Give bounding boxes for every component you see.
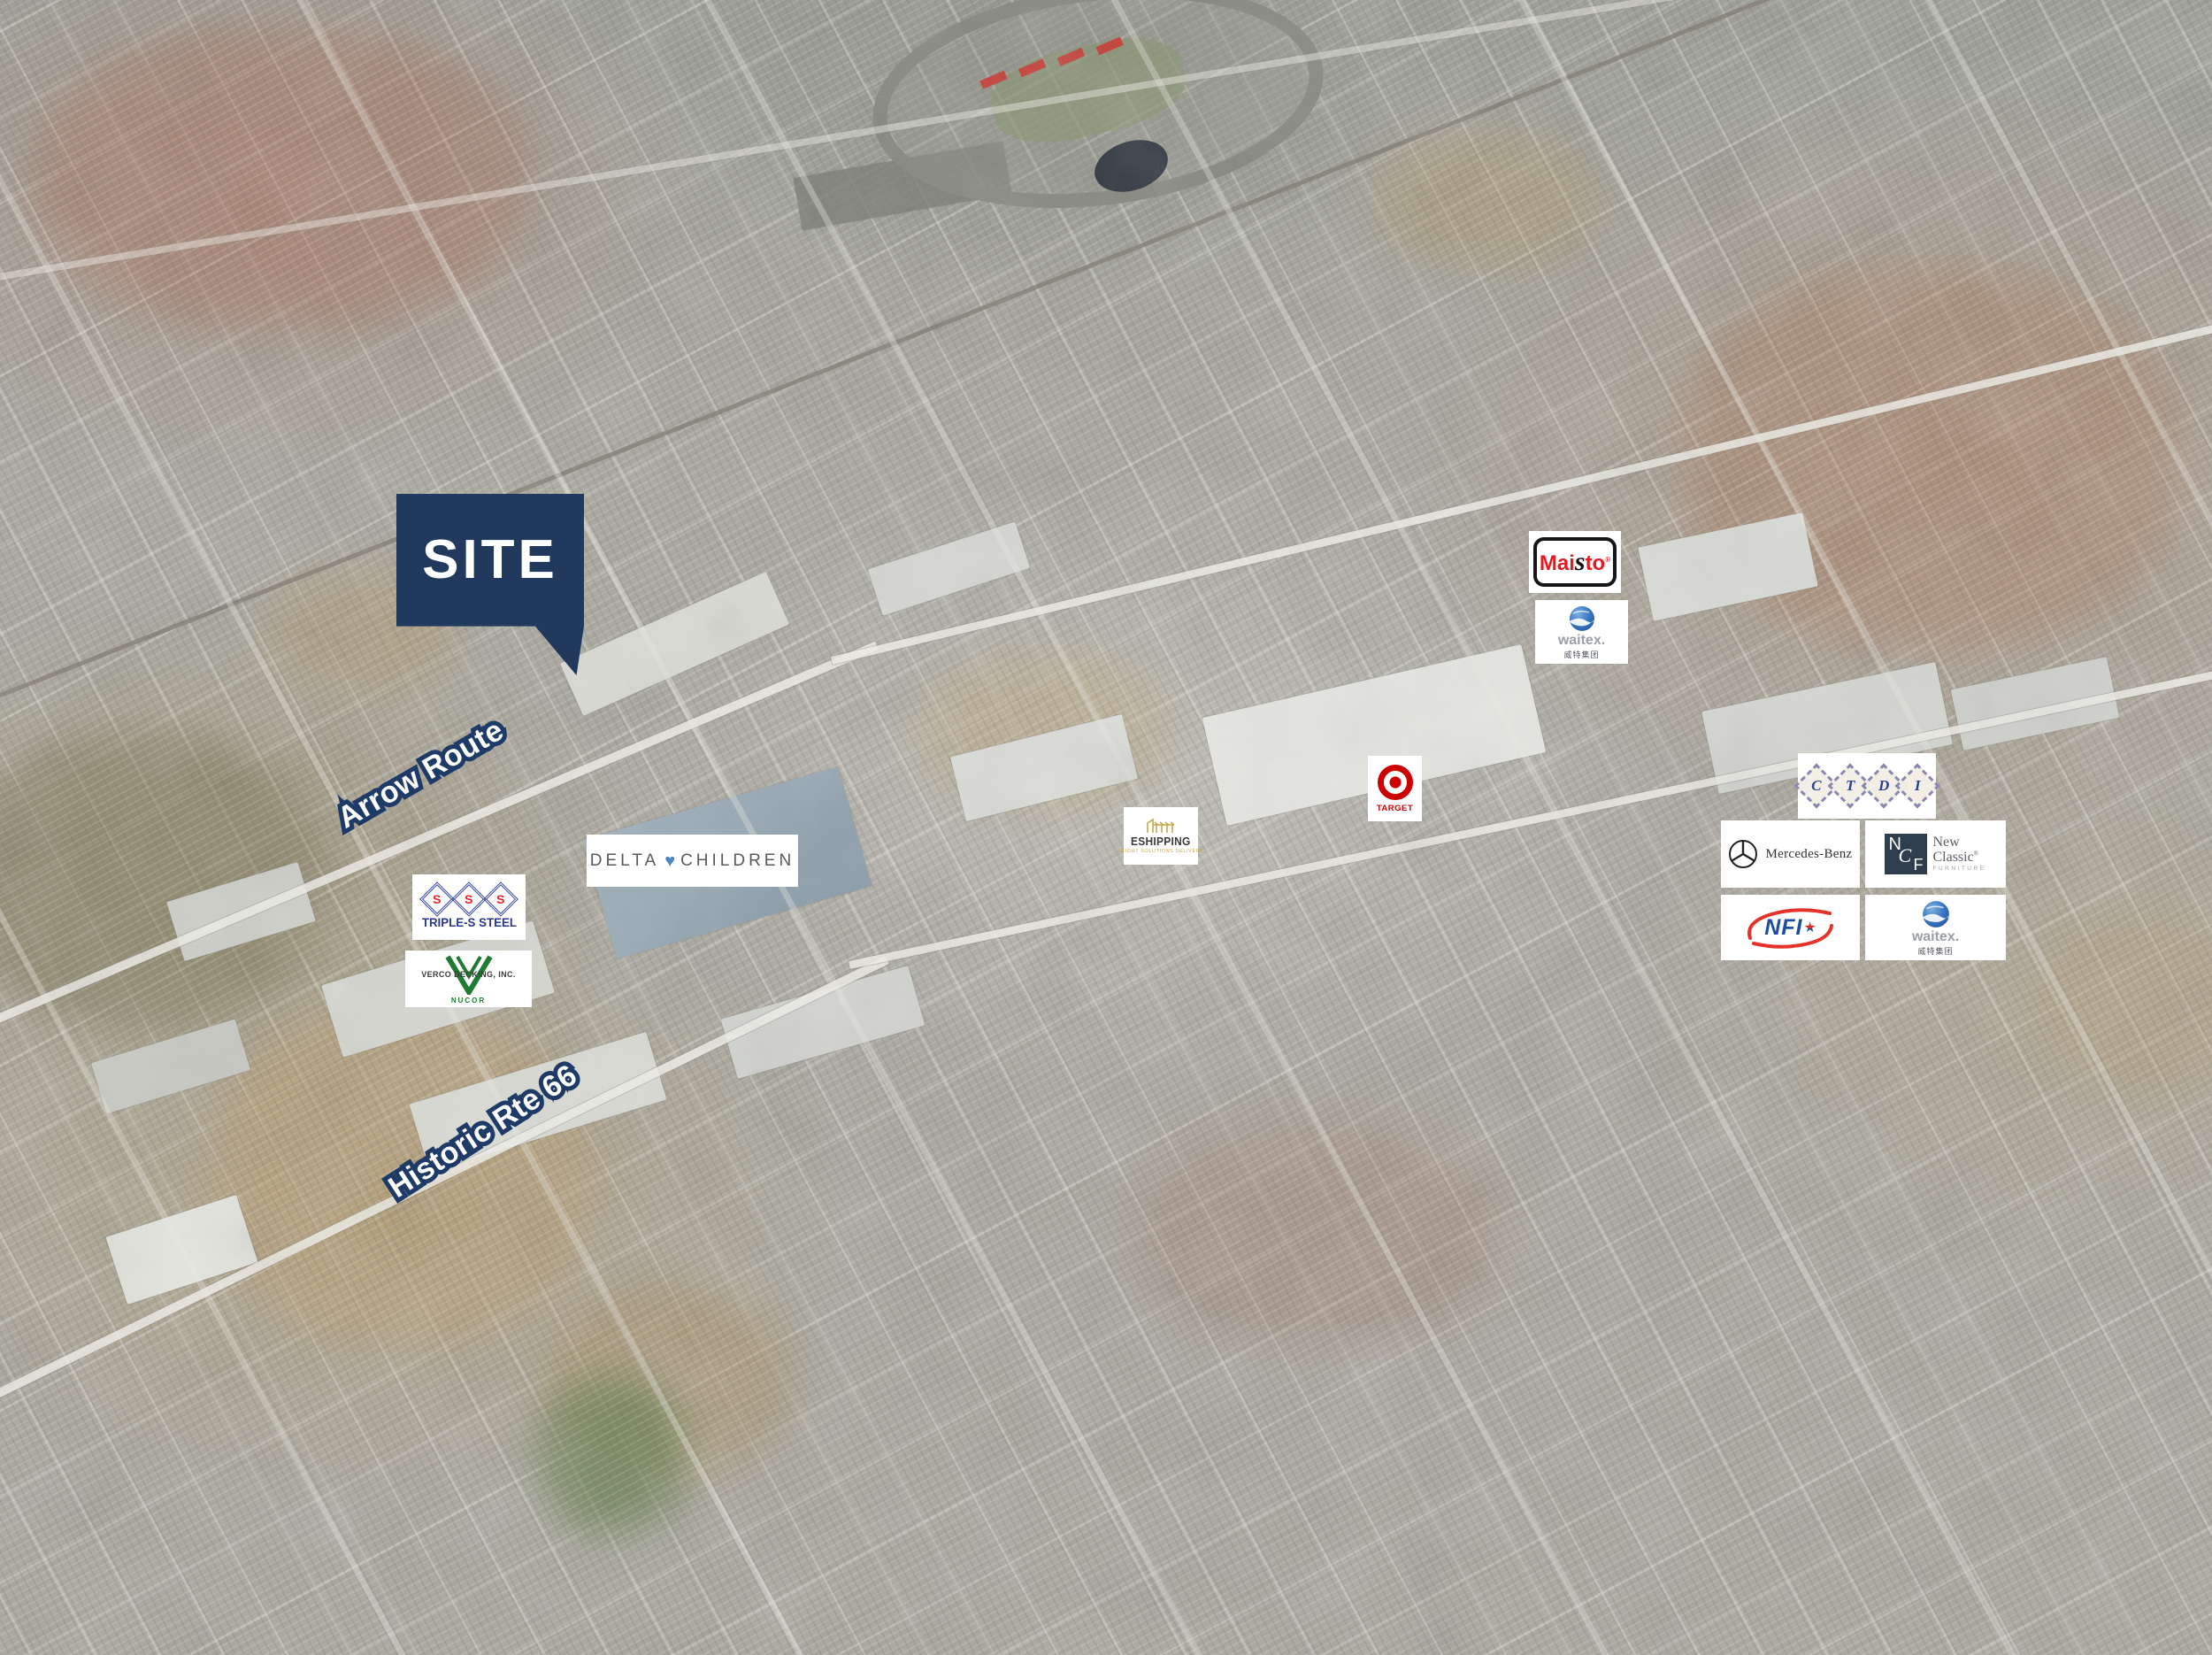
diamond-icon: S <box>483 881 518 917</box>
new-classic-line1: New <box>1932 835 1985 851</box>
triple-s-diamonds: S S S <box>425 887 513 912</box>
maisto-post: to <box>1586 551 1606 575</box>
verco-subtext: NUCOR <box>451 997 486 1005</box>
delta-word: DELTA <box>590 851 659 871</box>
nfi-wrap: NFI ★ <box>1738 903 1844 952</box>
mercedes-benz-name: Mercedes-Benz <box>1765 847 1852 862</box>
new-classic-word: Classic <box>1932 850 1973 865</box>
diamond-icon: S <box>451 881 487 917</box>
maisto-name: Maisto® <box>1540 549 1610 575</box>
eshipping-name: ESHIPPING <box>1131 835 1191 848</box>
diamond-icon: S <box>419 881 455 917</box>
new-classic-text: New Classic® FURNITURE <box>1932 835 1985 873</box>
dirt-patch <box>2035 912 2212 1097</box>
new-classic-line3: FURNITURE <box>1932 866 1985 873</box>
ctdi-letter: T <box>1846 777 1855 795</box>
waitex-chinese-name: 威特集团 <box>1917 945 1953 957</box>
ctdi-logo: C T D I <box>1798 753 1936 819</box>
ncf-letter-c: C <box>1898 844 1911 867</box>
dirt-patch <box>1376 133 1597 266</box>
waitex-chinese-name: 威特集团 <box>1563 649 1599 660</box>
waitex-globe-icon <box>1568 604 1596 633</box>
nfi-logo: NFI ★ <box>1721 895 1860 960</box>
eshipping-logo: ESHIPPING FREIGHT SOLUTIONS DELIVERED <box>1124 807 1198 865</box>
ncf-monogram: N C F <box>1885 834 1927 874</box>
children-word: CHILDREN <box>680 851 795 871</box>
ctdi-letter: C <box>1811 777 1821 795</box>
mercedes-star-icon <box>1728 839 1758 869</box>
waitex-logo-lower: waitex. 威特集团 <box>1865 895 2006 960</box>
waitex-globe-icon <box>1921 899 1951 929</box>
delta-children-logo: DELTA ♥ CHILDREN <box>587 835 798 887</box>
waitex-name: waitex. <box>1912 930 1959 944</box>
target-logo: TARGET <box>1368 756 1422 821</box>
verco-v-wrap: VERCO DECKING, INC. <box>405 954 532 995</box>
new-classic-logo: N C F New Classic® FURNITURE <box>1865 820 2006 888</box>
star-icon: ★ <box>1803 919 1816 936</box>
warehouse-icon <box>1146 818 1176 834</box>
ctdi-diamonds: C T D I <box>1800 770 1934 802</box>
diamond-letter: S <box>433 892 441 906</box>
diamond-letter: S <box>496 892 504 906</box>
triple-s-steel-name: TRIPLE-S STEEL <box>421 915 516 929</box>
nfi-name: NFI <box>1764 915 1802 941</box>
maisto-logo: Maisto® <box>1529 531 1621 593</box>
maisto-frame: Maisto® <box>1533 537 1617 587</box>
heart-icon: ♥ <box>664 852 675 870</box>
aerial-map: SITE Arrow Route Arrow Route Historic Rt… <box>0 0 2212 1655</box>
warehouse-building <box>868 521 1030 615</box>
verco-decking-logo: VERCO DECKING, INC. NUCOR <box>405 951 532 1007</box>
waitex-name: waitex. <box>1558 634 1605 648</box>
registered-mark: ® <box>1605 556 1610 564</box>
site-marker-label: SITE <box>396 494 584 627</box>
diamond-letter: S <box>465 892 472 906</box>
diamond-icon: I <box>1895 764 1940 809</box>
ctdi-letter: D <box>1878 777 1889 795</box>
target-name: TARGET <box>1377 804 1413 813</box>
new-classic-line2: Classic® <box>1932 851 1985 866</box>
residential-tint <box>1133 1115 1504 1345</box>
mercedes-benz-logo: Mercedes-Benz <box>1721 820 1860 888</box>
triple-s-steel-logo: S S S TRIPLE-S STEEL <box>412 874 526 940</box>
target-bullseye-icon <box>1378 765 1413 800</box>
maisto-pre: Mai <box>1540 551 1575 575</box>
waitex-logo-upper: waitex. 威特集团 <box>1535 600 1628 664</box>
ctdi-letter: I <box>1915 777 1921 795</box>
verco-name: VERCO DECKING, INC. <box>421 970 516 979</box>
ncf-letter-f: F <box>1913 856 1923 874</box>
eshipping-tagline: FREIGHT SOLUTIONS DELIVERED <box>1114 849 1208 854</box>
registered-mark: ® <box>1974 850 1978 857</box>
maisto-s: s <box>1575 547 1586 576</box>
